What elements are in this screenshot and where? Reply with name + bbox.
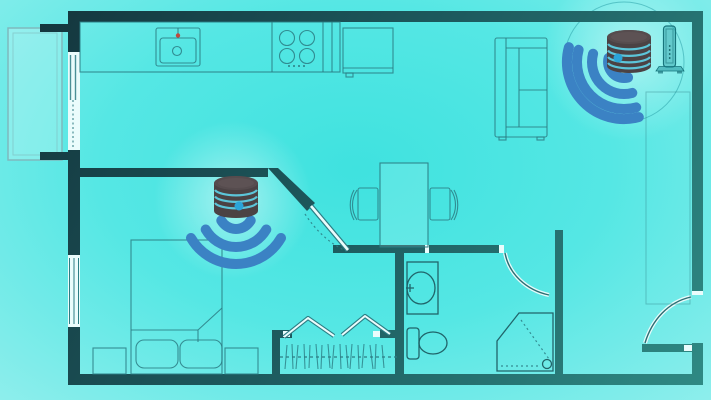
- door-jamb: [68, 147, 80, 150]
- radiator-foot: [677, 71, 682, 74]
- stove-knob: [298, 65, 300, 67]
- door-jamb: [499, 245, 504, 253]
- radiator-dot: [669, 49, 671, 51]
- door-jamb: [373, 331, 380, 337]
- entry-door: [642, 297, 692, 352]
- balcony-outline: [8, 28, 62, 160]
- kitchen-counter: [80, 22, 340, 72]
- faucet-red-dot: [176, 33, 180, 37]
- sink-basin: [160, 38, 196, 63]
- closet: [280, 316, 398, 369]
- radiator-base: [656, 67, 684, 72]
- door-swing-arc: [505, 253, 549, 295]
- window-jamb: [68, 324, 80, 327]
- blanket-fold: [198, 308, 222, 342]
- sofa-outline: [495, 38, 547, 137]
- router-led: [614, 54, 623, 63]
- wall-closet-left: [272, 338, 280, 374]
- burner: [300, 49, 315, 64]
- toilet: [407, 328, 447, 359]
- door-jamb: [68, 52, 80, 55]
- burner: [300, 31, 315, 46]
- shower-drain: [543, 360, 552, 369]
- radiator-foot: [658, 71, 663, 74]
- window: [68, 258, 80, 324]
- wifi-router-bedroom: [191, 176, 281, 264]
- chair-back: [451, 190, 456, 220]
- pillow: [136, 340, 178, 368]
- window-jamb: [68, 255, 80, 258]
- sofa-foot: [537, 137, 544, 140]
- router-led: [235, 202, 244, 211]
- wall-segment: [40, 152, 68, 160]
- corner-shower: [497, 313, 553, 371]
- washbasin: [406, 262, 438, 314]
- burner: [280, 49, 295, 64]
- shower-dotted-diagonal: [521, 320, 549, 359]
- radiator-dot: [669, 53, 671, 55]
- stove-knob: [288, 65, 290, 67]
- nightstand: [93, 348, 126, 374]
- toilet-tank: [407, 328, 419, 359]
- wall-left-mid: [68, 150, 80, 258]
- device-top-highlight: [611, 32, 647, 42]
- sofa-foot: [499, 137, 506, 140]
- chair-right: [430, 188, 458, 220]
- door-leaf-cap: [684, 345, 692, 351]
- chair-seat: [358, 188, 378, 220]
- wall-niche-outline: [646, 92, 690, 304]
- chair-left: [350, 188, 378, 220]
- dining-table: [380, 163, 428, 247]
- wifi-signal-arc: [221, 221, 250, 229]
- fridge-foot: [346, 73, 353, 77]
- stove-knob: [303, 65, 305, 67]
- chair-back: [353, 190, 358, 220]
- wall-right-lower: [692, 343, 703, 385]
- bathroom: [406, 262, 553, 371]
- stove: [280, 31, 315, 68]
- fridge: [343, 28, 393, 77]
- door-swing-arc: [505, 253, 549, 295]
- toilet-bowl: [419, 332, 447, 354]
- device-top-highlight: [218, 178, 254, 188]
- sofa: [495, 38, 547, 140]
- wall-diagonal: [268, 168, 315, 211]
- pillow: [180, 340, 222, 368]
- kitchen-sink: [156, 28, 200, 66]
- burner: [280, 31, 295, 46]
- bathroom-door: [505, 253, 549, 295]
- dining-set: [350, 163, 458, 247]
- wall-bottom: [68, 374, 703, 385]
- wall-segment: [40, 24, 68, 32]
- wall-bedroom-divider: [80, 168, 268, 177]
- balcony: [8, 24, 68, 160]
- bedroom-door: [305, 206, 348, 251]
- sink-drain: [173, 47, 182, 56]
- wall-right-upper: [692, 11, 703, 295]
- radiator-dot: [669, 45, 671, 47]
- wall-top: [68, 11, 703, 22]
- stove-knob: [293, 65, 295, 67]
- radiator: [656, 26, 684, 74]
- wall-bathroom-left: [395, 251, 404, 374]
- floor-plan-illustration: [0, 0, 711, 400]
- chair-seat: [430, 188, 450, 220]
- radiator-dot: [669, 57, 671, 59]
- fridge-body: [343, 28, 393, 73]
- nightstand: [225, 348, 258, 374]
- wall-left-upper: [68, 11, 80, 55]
- wall-bathroom-right: [555, 230, 563, 374]
- door-leaf-core: [311, 206, 348, 250]
- balcony-door: [68, 55, 80, 147]
- floor-plan-svg: [0, 0, 711, 400]
- wifi-router-living: [567, 30, 651, 119]
- door-jamb: [692, 291, 703, 295]
- shower-outline: [497, 313, 553, 371]
- kitchen: [80, 22, 393, 77]
- wall-left-lower: [68, 327, 80, 385]
